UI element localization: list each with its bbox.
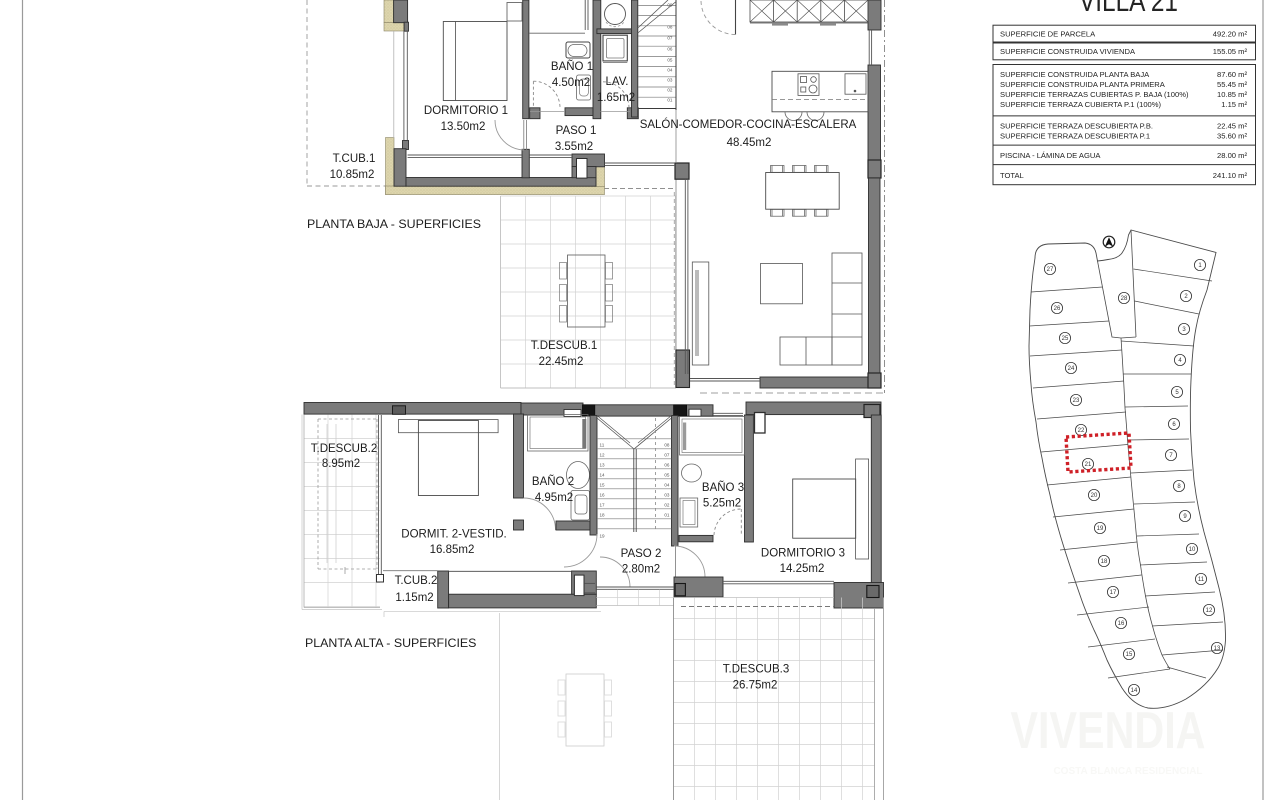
- svg-text:DORMITORIO 1: DORMITORIO 1: [424, 105, 508, 117]
- svg-text:11: 11: [1198, 577, 1205, 583]
- svg-text:05: 05: [667, 58, 673, 63]
- svg-text:13: 13: [1214, 646, 1221, 652]
- svg-text:20: 20: [1091, 493, 1098, 499]
- svg-text:PASO 1: PASO 1: [556, 125, 597, 137]
- svg-text:15: 15: [1126, 652, 1133, 658]
- svg-text:22.45 m²: 22.45 m²: [1217, 122, 1247, 131]
- svg-text:SUPERFICIE CONSTRUIDA VIVIENDA: SUPERFICIE CONSTRUIDA VIVIENDA: [1000, 47, 1136, 56]
- svg-text:4.50m2: 4.50m2: [552, 77, 590, 89]
- svg-text:17: 17: [600, 503, 606, 508]
- svg-text:DORMIT. 2-VESTID.: DORMIT. 2-VESTID.: [401, 529, 506, 541]
- svg-text:BAÑO 3: BAÑO 3: [702, 481, 744, 494]
- svg-text:10: 10: [1189, 547, 1196, 553]
- svg-text:10.85m2: 10.85m2: [330, 169, 375, 181]
- svg-text:22.45m2: 22.45m2: [539, 356, 584, 368]
- svg-text:SALÓN-COMEDOR-COCINA-ESCALERA: SALÓN-COMEDOR-COCINA-ESCALERA: [640, 118, 857, 131]
- svg-text:LAV.: LAV.: [605, 76, 628, 88]
- svg-text:48.45m2: 48.45m2: [727, 137, 772, 149]
- svg-text:23: 23: [1073, 398, 1080, 404]
- svg-text:TOTAL: TOTAL: [1000, 171, 1024, 180]
- svg-text:12: 12: [600, 453, 606, 458]
- svg-text:5.25m2: 5.25m2: [703, 498, 741, 510]
- svg-text:04: 04: [667, 68, 673, 73]
- svg-text:10.85 m²: 10.85 m²: [1217, 90, 1247, 99]
- svg-text:15: 15: [600, 483, 606, 488]
- svg-text:1.15m2: 1.15m2: [395, 592, 433, 604]
- svg-text:25: 25: [1062, 336, 1069, 342]
- svg-text:BAÑO 1: BAÑO 1: [551, 60, 593, 73]
- svg-text:SUPERFICIE TERRAZAS CUBIERTAS: SUPERFICIE TERRAZAS CUBIERTAS P. BAJA (1…: [1000, 90, 1189, 99]
- svg-text:14: 14: [1131, 688, 1138, 694]
- svg-text:28.00 m²: 28.00 m²: [1217, 151, 1247, 160]
- svg-text:19: 19: [600, 534, 606, 539]
- svg-text:03: 03: [667, 78, 673, 83]
- svg-text:16.85m2: 16.85m2: [430, 544, 475, 556]
- svg-text:17: 17: [1110, 590, 1117, 596]
- svg-text:PLANTA BAJA - SUPERFICIES: PLANTA BAJA - SUPERFICIES: [307, 217, 481, 231]
- svg-text:07: 07: [664, 453, 670, 458]
- svg-text:22: 22: [1078, 428, 1085, 434]
- svg-text:18: 18: [600, 513, 606, 518]
- svg-text:02: 02: [664, 503, 670, 508]
- svg-text:55.45 m²: 55.45 m²: [1217, 80, 1247, 89]
- svg-text:02: 02: [667, 88, 673, 93]
- svg-text:T.CUB.2: T.CUB.2: [395, 575, 438, 587]
- svg-text:SUPERFICIE DE PARCELA: SUPERFICIE DE PARCELA: [1000, 29, 1096, 38]
- svg-text:35.60 m²: 35.60 m²: [1217, 132, 1247, 141]
- svg-text:11: 11: [600, 443, 605, 448]
- svg-text:VILLA 21: VILLA 21: [1079, 0, 1178, 18]
- svg-text:BAÑO 2: BAÑO 2: [532, 475, 574, 488]
- svg-text:09: 09: [667, 3, 673, 8]
- svg-text:14: 14: [600, 473, 606, 478]
- svg-text:16: 16: [1118, 621, 1125, 627]
- svg-text:14.25m2: 14.25m2: [780, 563, 825, 575]
- svg-text:VIVENDIA: VIVENDIA: [1011, 702, 1206, 760]
- svg-text:87.60 m²: 87.60 m²: [1217, 70, 1247, 79]
- svg-text:06: 06: [664, 463, 670, 468]
- svg-text:4.95m2: 4.95m2: [535, 492, 573, 504]
- svg-text:26.75m2: 26.75m2: [733, 680, 778, 692]
- svg-text:SUPERFICIE CONSTRUIDA PLANTA B: SUPERFICIE CONSTRUIDA PLANTA BAJA: [1000, 70, 1150, 79]
- svg-text:01: 01: [664, 513, 670, 518]
- svg-text:PASO 2: PASO 2: [621, 548, 662, 560]
- svg-text:27: 27: [1047, 267, 1054, 273]
- svg-text:01: 01: [667, 98, 673, 103]
- svg-text:COSTA BLANCA RESIDENCIAL: COSTA BLANCA RESIDENCIAL: [1053, 766, 1202, 777]
- svg-text:SUPERFICIE CONSTRUIDA PLANTA P: SUPERFICIE CONSTRUIDA PLANTA PRIMERA: [1000, 80, 1166, 89]
- svg-text:07: 07: [667, 36, 673, 41]
- svg-text:241.10 m²: 241.10 m²: [1213, 171, 1248, 180]
- svg-text:PLANTA ALTA - SUPERFICIES: PLANTA ALTA - SUPERFICIES: [305, 636, 476, 650]
- svg-text:12: 12: [1206, 608, 1213, 614]
- svg-text:06: 06: [667, 47, 673, 52]
- svg-text:T.DESCUB.3: T.DESCUB.3: [723, 664, 789, 676]
- svg-text:13.50m2: 13.50m2: [441, 121, 486, 133]
- svg-text:492.20 m²: 492.20 m²: [1213, 29, 1248, 38]
- svg-text:24: 24: [1068, 366, 1075, 372]
- svg-text:155.05 m²: 155.05 m²: [1213, 47, 1248, 56]
- svg-text:DORMITORIO 3: DORMITORIO 3: [761, 548, 845, 560]
- svg-text:3.55m2: 3.55m2: [555, 141, 593, 153]
- svg-text:SUPERFICIE TERRAZA DESCUBIERTA: SUPERFICIE TERRAZA DESCUBIERTA P.1: [1000, 132, 1150, 141]
- svg-text:8.95m2: 8.95m2: [322, 458, 360, 470]
- svg-text:SUPERFICIE TERRAZA DESCUBIERTA: SUPERFICIE TERRAZA DESCUBIERTA P.B.: [1000, 122, 1153, 131]
- svg-text:08: 08: [664, 443, 670, 448]
- svg-text:16: 16: [600, 493, 606, 498]
- svg-text:21: 21: [1085, 462, 1092, 468]
- svg-text:T.CUB.1: T.CUB.1: [333, 153, 376, 165]
- svg-text:04: 04: [664, 483, 670, 488]
- svg-text:26: 26: [1054, 306, 1061, 312]
- svg-text:13: 13: [600, 463, 606, 468]
- svg-text:05: 05: [664, 473, 670, 478]
- svg-text:28: 28: [1121, 296, 1128, 302]
- svg-text:18: 18: [1101, 559, 1108, 565]
- svg-text:PISCINA - LÁMINA DE AGUA: PISCINA - LÁMINA DE AGUA: [1000, 151, 1101, 160]
- svg-text:T.DESCUB.1: T.DESCUB.1: [531, 340, 597, 352]
- svg-text:03: 03: [664, 493, 670, 498]
- svg-text:SUPERFICIE TERRAZA CUBIERTA P.: SUPERFICIE TERRAZA CUBIERTA P.1 (100%): [1000, 100, 1162, 109]
- svg-text:19: 19: [1097, 526, 1104, 532]
- svg-text:T.DESCUB.2: T.DESCUB.2: [311, 443, 377, 455]
- svg-text:08: 08: [667, 25, 673, 30]
- svg-text:2.80m2: 2.80m2: [622, 564, 660, 576]
- svg-text:1.65m2: 1.65m2: [597, 92, 635, 104]
- svg-text:1.15 m²: 1.15 m²: [1221, 100, 1247, 109]
